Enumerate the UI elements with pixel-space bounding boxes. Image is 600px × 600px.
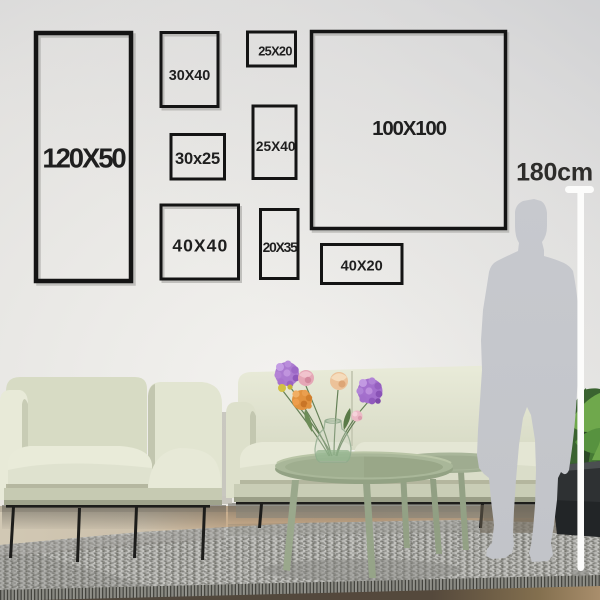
svg-text:25X20: 25X20	[258, 44, 292, 59]
svg-text:100X100: 100X100	[372, 117, 446, 140]
svg-text:30X40: 30X40	[169, 68, 211, 84]
svg-text:25X40: 25X40	[256, 139, 296, 154]
svg-text:40X40: 40X40	[172, 236, 228, 256]
svg-text:40X20: 40X20	[341, 258, 383, 274]
svg-text:30x25: 30x25	[175, 150, 220, 168]
svg-text:20X35: 20X35	[263, 240, 298, 255]
svg-text:180cm: 180cm	[516, 159, 593, 187]
svg-text:120X50: 120X50	[42, 143, 126, 174]
